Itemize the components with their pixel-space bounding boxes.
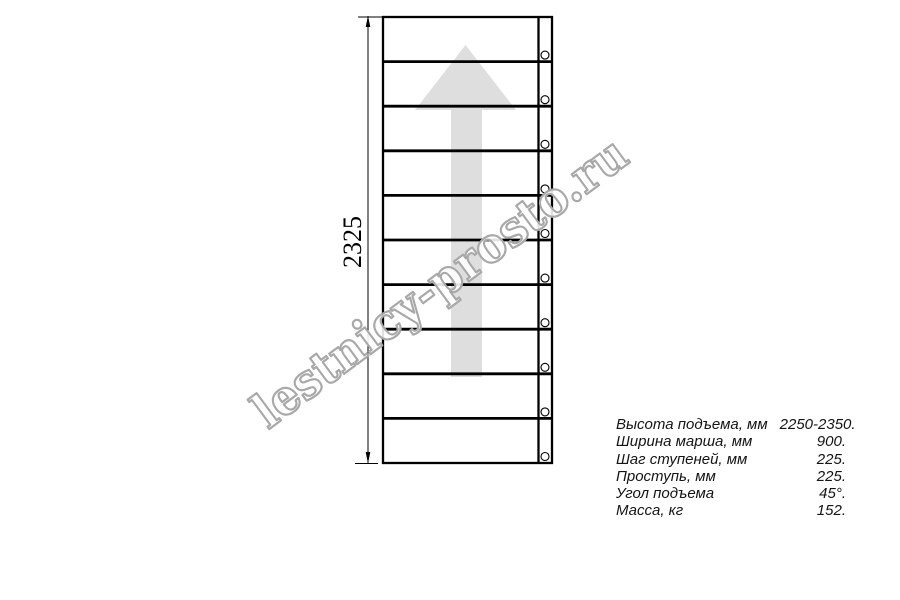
- bolt-circle: [541, 453, 549, 461]
- spec-label: Проступь, мм: [616, 468, 716, 485]
- spec-value: 152.: [817, 502, 846, 519]
- spec-row: Высота подъема, мм 2250-2350.: [616, 416, 846, 433]
- bolt-circle: [541, 140, 549, 148]
- spec-row: Угол подъема 45°.: [616, 485, 846, 502]
- bolt-circle: [541, 96, 549, 104]
- spec-value: 45°.: [819, 485, 846, 502]
- spec-row: Масса, кг 152.: [616, 502, 846, 519]
- spec-row: Шаг ступеней, мм 225.: [616, 451, 846, 468]
- bolt-circle: [541, 408, 549, 416]
- bolt-circle: [541, 363, 549, 371]
- spec-label: Масса, кг: [616, 502, 683, 519]
- bolt-circle: [541, 274, 549, 282]
- spec-row: Проступь, мм 225.: [616, 468, 846, 485]
- dimension-group: 2325: [338, 16, 383, 464]
- spec-label: Угол подъема: [616, 485, 714, 502]
- watermark-text: lestnicy-prosto.ru: [242, 126, 639, 440]
- spec-label: Шаг ступеней, мм: [616, 451, 747, 468]
- page: 2325 lestnicy-prosto.ru Высота подъема, …: [0, 0, 900, 600]
- spec-value: 225.: [817, 468, 846, 485]
- spec-value: 900.: [817, 433, 846, 450]
- spec-value: 2250-2350.: [780, 416, 856, 433]
- bolt-circles: [541, 51, 549, 460]
- spec-row: Ширина марша, мм 900.: [616, 433, 846, 450]
- dimension-label: 2325: [338, 216, 367, 268]
- dimension-arrowhead-bottom-icon: [366, 452, 371, 464]
- bolt-circle: [541, 51, 549, 59]
- spec-value: 225.: [817, 451, 846, 468]
- specs-table: Высота подъема, мм 2250-2350. Ширина мар…: [616, 416, 846, 520]
- spec-label: Ширина марша, мм: [616, 433, 752, 450]
- spec-label: Высота подъема, мм: [616, 416, 768, 433]
- bolt-circle: [541, 319, 549, 327]
